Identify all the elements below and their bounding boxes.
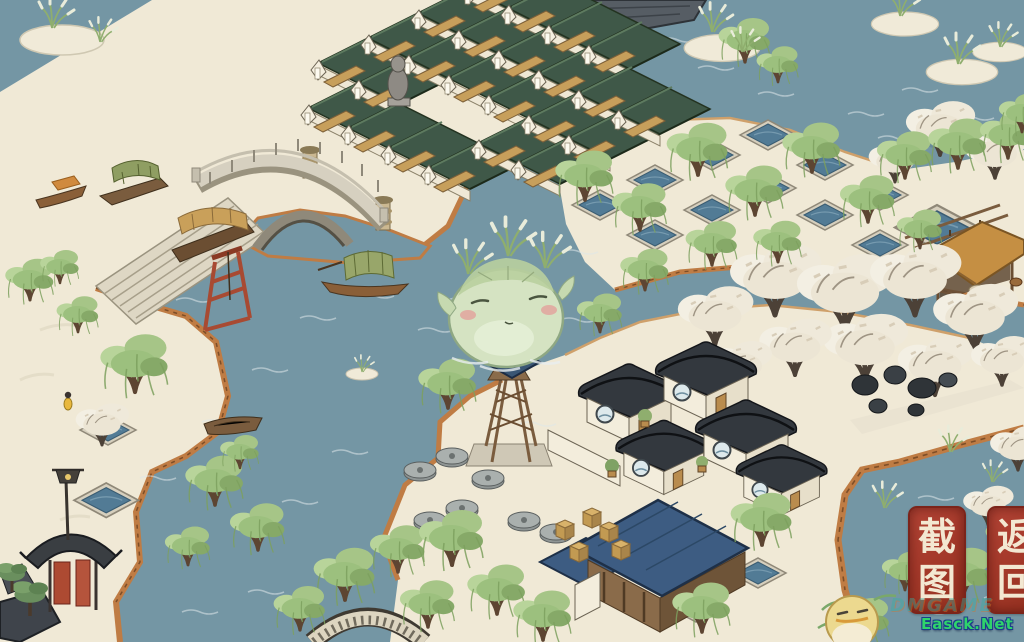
stone-mill [404,462,436,481]
game-viewport[interactable]: 截 图 返 回 DMGAME Easck.Net [0,0,1024,642]
stone-mill [472,470,504,489]
faint-watermark: DMGAME [890,595,994,616]
snow-islet [20,25,104,55]
stone-mill [436,448,468,467]
site-watermark: Easck.Net [921,615,1014,633]
crate [570,542,588,562]
crate [600,522,618,542]
back-button-char: 返 [997,515,1024,559]
screenshot-button-char: 截 [918,515,956,559]
villager[interactable] [64,392,72,410]
crate [583,508,601,528]
back-button-char: 回 [997,561,1024,605]
snow-islet [926,59,997,85]
snow-islet [871,12,938,36]
crate [612,540,630,560]
game-scene-map[interactable] [0,0,1024,642]
crate [556,520,574,540]
stone-mill [508,512,540,531]
